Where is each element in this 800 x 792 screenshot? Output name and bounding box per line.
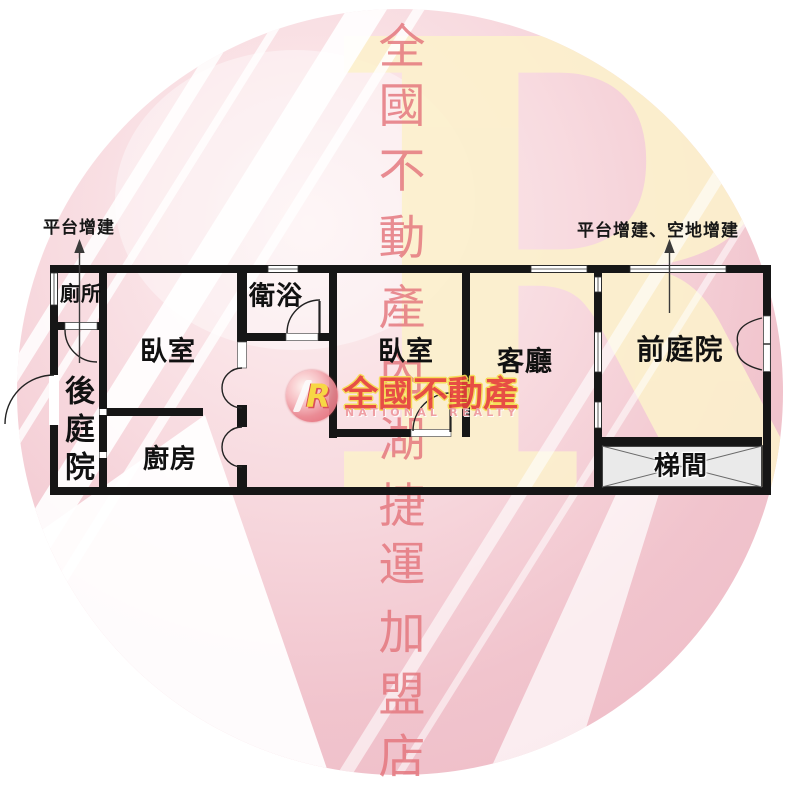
room-label-back-yard: 後庭院 [64,373,96,486]
floorplan-image: R 全 國 不 動 產 內 湖 捷 運 加 盟 [0,0,800,792]
room-label-kitchen: 廚房 [143,439,197,476]
annotation-left: 平台增建 [43,213,115,238]
room-label-front-yard: 前庭院 [636,328,723,368]
room-label-bathroom: 衛浴 [249,276,303,313]
room-label-bedroom-2: 臥室 [378,330,434,369]
badge-letter: R [306,378,331,414]
room-label-toilet: 廁所 [60,278,102,307]
room-label-bedroom-1: 臥室 [140,330,196,369]
brand-subtitle: NATIONAL REALTY [345,406,520,419]
annotation-right: 平台增建、空地增建 [577,216,739,241]
room-label-stairwell: 梯間 [654,446,708,483]
brand-badge: R [286,370,338,422]
brand-watermark: R 全國不動產 NATIONAL REALTY [286,368,518,426]
